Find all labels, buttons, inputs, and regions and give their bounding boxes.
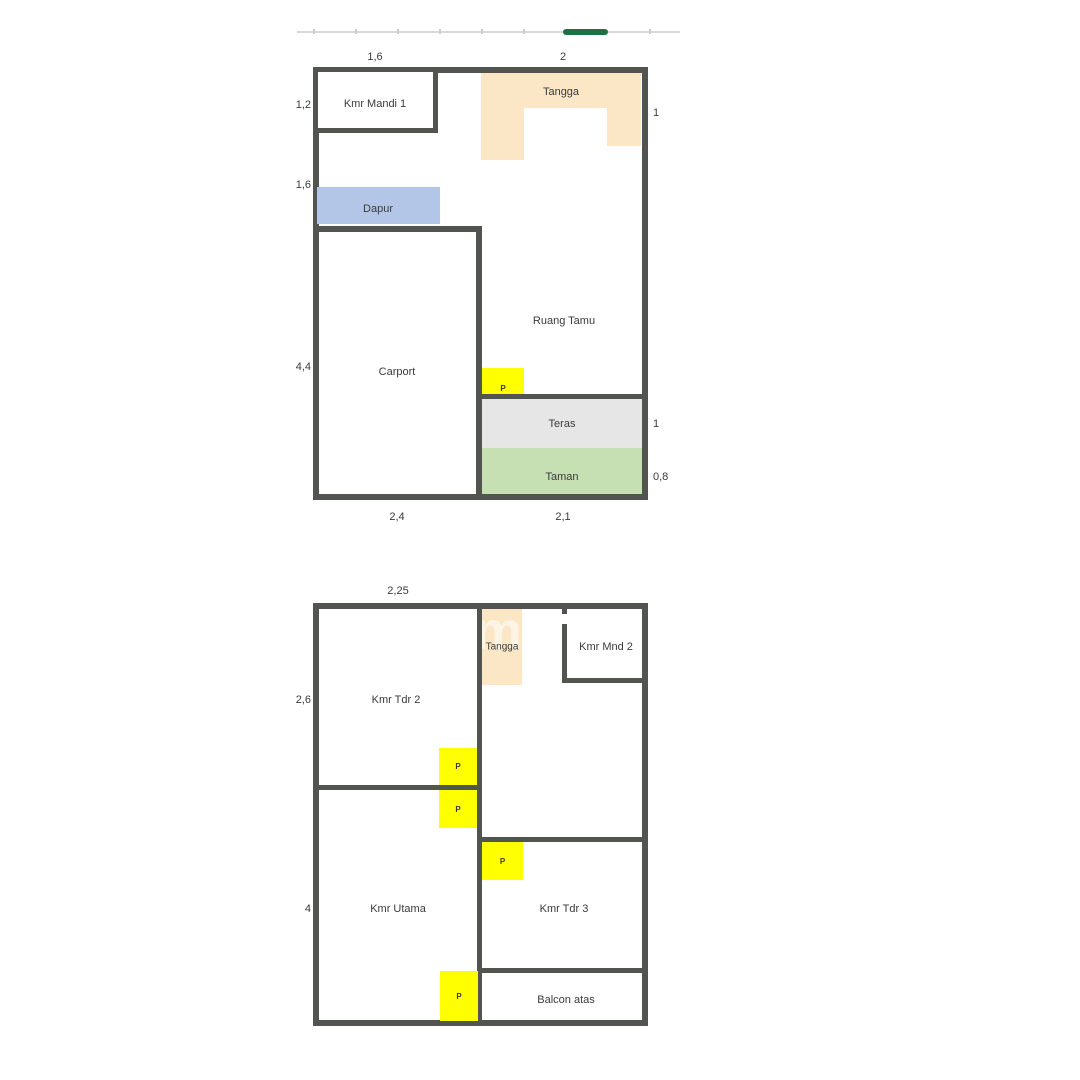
horizontal-scrollbar-thumb[interactable] [563,29,608,35]
floor2-bath2-left-wall [562,609,567,614]
floor2-bath2-left-wall [562,624,567,678]
dim-top-stairs: 2 [560,51,566,63]
room-label-dapur: Dapur [363,203,393,215]
door-label: P [456,992,461,1001]
floor2-balcony-top-wall [482,968,648,973]
floor2-center-wall [477,603,482,1026]
floorplan-canvas: P Kmr Mandi 1 Tangga Dapur Carport Ruang… [0,0,1080,1080]
room-label-carport: Carport [379,366,416,378]
floor1-stairs-area [607,108,641,146]
door-label: P [500,857,505,866]
dim-bottom-carport: 2,4 [389,511,404,523]
scroll-tick [355,29,357,34]
dim-left-kitchen: 1,6 [296,179,311,191]
floor2-door-p-balcony: P [440,971,478,1021]
room-label-balcon-atas: Balcon atas [537,994,594,1006]
room-label-kmr-mandi-1: Kmr Mandi 1 [344,98,406,110]
scroll-tick [439,29,441,34]
scroll-tick [397,29,399,34]
dim-bottom-terrace: 2,1 [555,511,570,523]
door-label: P [500,384,505,393]
dim-top-bath: 1,6 [367,51,382,63]
dim-right-stairs: 1 [653,107,659,119]
floor2-door-p-bed2: P [439,748,477,785]
room-label-kmr-tdr-3: Kmr Tdr 3 [540,903,589,915]
room-label-kmr-utama: Kmr Utama [370,903,426,915]
room-label-tangga-2: Tangga [486,642,519,653]
room-label-ruang-tamu: Ruang Tamu [533,315,595,327]
scroll-tick [481,29,483,34]
room-label-taman: Taman [545,471,578,483]
dim-left-carport: 4,4 [296,361,311,373]
scroll-tick [649,29,651,34]
door-label: P [455,762,460,771]
scroll-tick [523,29,525,34]
dim-left-bath: 1,2 [296,99,311,111]
room-label-teras: Teras [549,418,576,430]
room-label-kmr-mnd-2: Kmr Mnd 2 [579,641,633,653]
floor2-door-p-master: P [439,790,477,828]
dim-top-bed2: 2,25 [387,585,408,597]
dim-right-garden: 0,8 [653,471,668,483]
floor2-door-p-bed3: P [482,842,523,880]
dim-left-master: 4 [305,903,311,915]
floor2-bath2-bottom-wall [562,678,648,683]
dim-left-bed2: 2,6 [296,694,311,706]
room-label-tangga-1: Tangga [543,86,579,98]
floor1-stairs-area [481,108,524,160]
dim-right-terrace: 1 [653,418,659,430]
floor1-carport-walls [313,226,482,500]
scroll-tick [313,29,315,34]
room-label-kmr-tdr-2: Kmr Tdr 2 [372,694,421,706]
floor1-door-p: P [482,368,524,394]
door-label: P [455,805,460,814]
